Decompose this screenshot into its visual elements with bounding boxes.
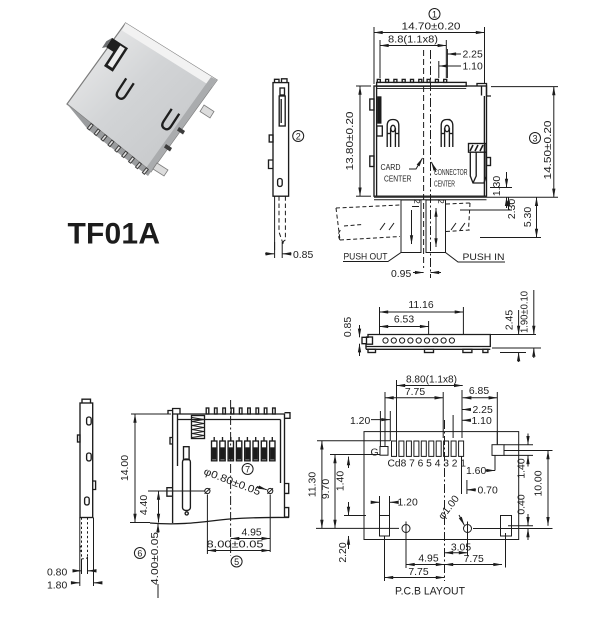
svg-text:0.40: 0.40 xyxy=(517,494,528,514)
svg-text:CENTER: CENTER xyxy=(384,175,412,184)
svg-text:Cd8 7 6 5 4 3 2 1: Cd8 7 6 5 4 3 2 1 xyxy=(388,459,467,470)
svg-text:2: 2 xyxy=(412,199,422,204)
svg-text:PUSH IN: PUSH IN xyxy=(463,252,505,263)
svg-text:1.80: 1.80 xyxy=(47,581,67,592)
svg-text:7: 7 xyxy=(245,465,250,475)
svg-text:4.00±0.05: 4.00±0.05 xyxy=(150,532,161,585)
svg-text:2.45: 2.45 xyxy=(505,310,516,330)
svg-text:φ1.00: φ1.00 xyxy=(437,494,462,522)
svg-text:10.00: 10.00 xyxy=(534,470,545,496)
svg-text:1.10: 1.10 xyxy=(463,62,483,73)
svg-text:CARD: CARD xyxy=(381,163,401,172)
svg-text:3.05: 3.05 xyxy=(451,543,471,554)
svg-text:4.95: 4.95 xyxy=(418,554,438,565)
svg-text:PUSH OUT: PUSH OUT xyxy=(344,252,388,263)
svg-text:2.20: 2.20 xyxy=(338,542,349,562)
svg-text:6: 6 xyxy=(137,549,142,559)
svg-text:14.70±0.20: 14.70±0.20 xyxy=(402,22,461,33)
svg-text:11.16: 11.16 xyxy=(408,300,433,311)
svg-text:1.30: 1.30 xyxy=(492,176,503,196)
svg-text:1.20: 1.20 xyxy=(398,498,418,509)
svg-text:CENTER: CENTER xyxy=(434,180,455,189)
svg-text:0.95: 0.95 xyxy=(391,269,411,280)
svg-text:1.40: 1.40 xyxy=(517,458,528,478)
svg-text:2.25: 2.25 xyxy=(473,405,493,416)
svg-text:7.75: 7.75 xyxy=(405,387,425,398)
svg-text:7.75: 7.75 xyxy=(408,567,428,578)
svg-text:0.80: 0.80 xyxy=(47,568,67,579)
svg-text:6.85: 6.85 xyxy=(469,386,489,397)
svg-text:14.50±0.20: 14.50±0.20 xyxy=(543,120,554,179)
svg-text:1.40: 1.40 xyxy=(336,471,347,491)
svg-text:1.20: 1.20 xyxy=(350,416,370,427)
svg-text:CONNECTOR: CONNECTOR xyxy=(434,168,468,177)
svg-text:13.80±0.20: 13.80±0.20 xyxy=(345,111,356,170)
svg-text:G: G xyxy=(371,448,379,459)
svg-text:6.53: 6.53 xyxy=(394,315,414,326)
svg-text:TF01A: TF01A xyxy=(68,218,161,251)
svg-text:4.95: 4.95 xyxy=(241,528,261,539)
svg-text:1.90±0.10: 1.90±0.10 xyxy=(520,291,531,333)
svg-text:0.70: 0.70 xyxy=(478,486,498,497)
svg-text:5: 5 xyxy=(234,557,239,567)
svg-text:1.10: 1.10 xyxy=(472,416,492,427)
svg-text:5.30: 5.30 xyxy=(523,207,534,227)
svg-text:4.40: 4.40 xyxy=(139,495,150,515)
svg-text:1: 1 xyxy=(432,10,437,20)
svg-text:7.75: 7.75 xyxy=(464,554,484,565)
svg-text:11.30: 11.30 xyxy=(308,472,319,497)
svg-text:0.85: 0.85 xyxy=(343,317,354,337)
svg-text:8.80(1.1x8): 8.80(1.1x8) xyxy=(406,375,457,386)
svg-text:P.C.B LAYOUT: P.C.B LAYOUT xyxy=(395,586,465,598)
svg-text:8.00±0.05: 8.00±0.05 xyxy=(207,540,264,551)
svg-text:0.85: 0.85 xyxy=(293,250,313,261)
svg-text:9.70: 9.70 xyxy=(321,479,332,499)
svg-text:8.8(1.1x8): 8.8(1.1x8) xyxy=(388,35,438,46)
svg-text:2: 2 xyxy=(296,132,301,142)
svg-text:3: 3 xyxy=(532,134,537,144)
svg-text:14.00: 14.00 xyxy=(120,455,131,481)
svg-text:2: 2 xyxy=(436,199,446,204)
svg-text:2.25: 2.25 xyxy=(463,50,483,61)
svg-text:1.60: 1.60 xyxy=(466,466,486,477)
